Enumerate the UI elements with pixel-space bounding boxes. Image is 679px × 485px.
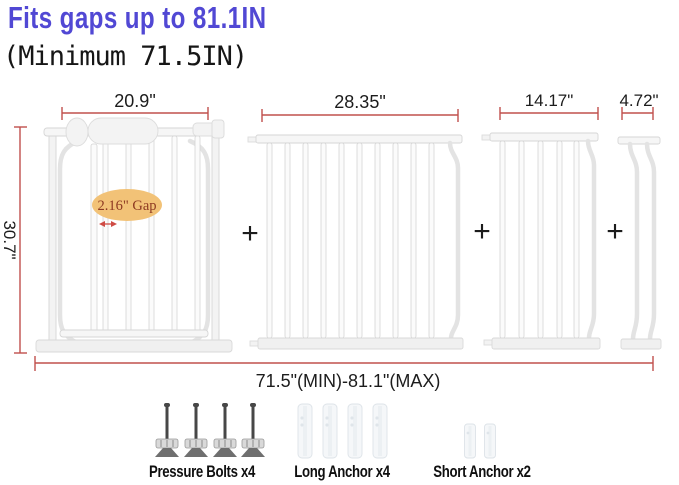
dim-total-width: 71.5"(MIN)-81.1"(MAX) <box>35 356 653 391</box>
gate-bar <box>195 136 200 333</box>
dim-label-main-gate: 20.9" <box>114 91 155 111</box>
hinge-knob <box>66 118 88 146</box>
legend-label-short-anchor: Short Anchor x2 <box>433 463 530 482</box>
extension-curved-bar <box>588 141 594 338</box>
door-bottom-rail <box>60 330 208 337</box>
gate-bar <box>500 141 505 338</box>
gate-right-post <box>212 129 219 352</box>
extension-bottom-rail <box>492 338 600 349</box>
legend-long-anchors: Long Anchor x4 <box>294 404 390 481</box>
gate-bar <box>375 143 380 338</box>
gate-bar <box>267 143 272 338</box>
extension-curved-bar <box>647 144 654 339</box>
product-dimension-diagram: Fits gaps up to 81.1IN (Minimum 71.5IN) <box>0 0 679 485</box>
gate-bar <box>285 143 290 338</box>
plus-sign: + <box>473 215 491 248</box>
dim-width-extension-4in: 4.72" <box>619 91 658 120</box>
long-anchor-icon <box>298 404 312 458</box>
gate-bar <box>574 141 579 338</box>
dim-label-height: 30.7" <box>0 220 19 259</box>
extension-top-rail <box>256 135 462 143</box>
gate-bar <box>149 136 154 333</box>
long-anchor-icon <box>323 404 337 458</box>
legend-label-long-anchor: Long Anchor x4 <box>294 463 390 482</box>
long-anchor-icon <box>373 404 387 458</box>
pressure-bolt-icon <box>184 403 208 457</box>
gate-left-curved-bar <box>60 141 78 343</box>
dim-width-extension-14in: 14.17" <box>500 91 598 120</box>
gate-bar <box>172 136 177 333</box>
gap-label: 2.16" Gap <box>97 198 156 214</box>
extension-bottom-rail <box>258 338 463 349</box>
gate-diagram: 20.9" 28.35" 14.17" 4.72" 30 <box>0 0 679 485</box>
short-anchor-icon <box>485 424 496 458</box>
pressure-bolt-icon <box>155 403 179 457</box>
dim-height: 30.7" <box>0 127 27 353</box>
extension-bottom-rail <box>621 339 661 349</box>
panel-main-gate <box>36 118 232 352</box>
dim-label-extension-4in: 4.72" <box>619 91 658 110</box>
gate-bar <box>411 143 416 338</box>
dim-label-extension-28in: 28.35" <box>334 92 385 112</box>
extension-top-rail <box>618 137 660 144</box>
gate-bar <box>126 136 131 333</box>
plus-sign: + <box>241 217 259 250</box>
plus-sign: + <box>606 215 624 248</box>
gate-handle <box>88 118 158 144</box>
gate-bar <box>321 143 326 338</box>
short-anchor-icon <box>465 424 476 458</box>
pressure-bolt-icon <box>241 403 265 457</box>
gate-bar <box>538 141 543 338</box>
gate-left-post <box>49 129 56 352</box>
pressure-bolt-icon <box>213 403 237 457</box>
gate-base-rail <box>36 340 232 352</box>
gate-bar <box>557 141 562 338</box>
gate-bar <box>519 141 524 338</box>
panel-extension-28in <box>248 135 463 349</box>
gate-bar <box>339 143 344 338</box>
legend-label-pressure-bolts: Pressure Bolts x4 <box>149 463 256 482</box>
legend-pressure-bolts: Pressure Bolts x4 <box>149 403 265 481</box>
dim-width-extension-28in: 28.35" <box>262 92 458 122</box>
dim-width-main-gate: 20.9" <box>62 91 208 120</box>
gap-arrowhead-right <box>111 221 117 227</box>
legend-short-anchors: Short Anchor x2 <box>433 424 530 481</box>
dim-label-total: 71.5"(MIN)-81.1"(MAX) <box>256 371 441 391</box>
gate-latch-catch <box>212 120 224 138</box>
long-anchor-icon <box>348 404 362 458</box>
gap-arrowhead-left <box>99 221 105 227</box>
gate-bar <box>429 143 434 338</box>
extension-curved-bar <box>630 144 637 339</box>
extension-curved-bar <box>450 143 458 338</box>
door-stile <box>91 144 97 332</box>
gate-bar <box>393 143 398 338</box>
gate-bar <box>303 143 308 338</box>
dim-label-extension-14in: 14.17" <box>525 91 574 110</box>
extension-top-rail <box>490 133 598 141</box>
gate-bar <box>357 143 362 338</box>
panel-extension-4in <box>618 137 661 349</box>
panel-extension-14in <box>482 133 600 349</box>
gate-bar <box>103 136 108 333</box>
